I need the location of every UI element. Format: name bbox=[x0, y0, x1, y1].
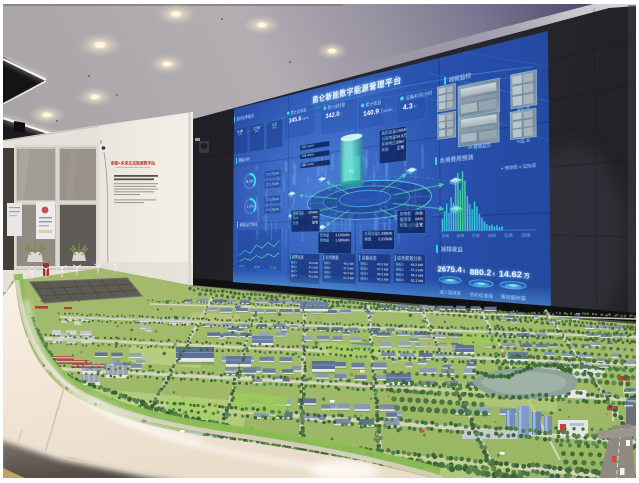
svg-text:6.1%: 6.1% bbox=[247, 178, 254, 184]
svg-text:23:00: 23:00 bbox=[522, 234, 532, 238]
svg-text:25: 25 bbox=[349, 168, 354, 175]
svg-text:08:00: 08:00 bbox=[254, 266, 261, 269]
svg-text:21:00: 21:00 bbox=[505, 235, 514, 239]
svg-text:新能+未来生态能源数字站: 新能+未来生态能源数字站 bbox=[111, 161, 155, 166]
svg-text:Power the Renewable And Digita: Power the Renewable And Digital Energy bbox=[116, 166, 151, 169]
svg-text:1.1%: 1.1% bbox=[247, 203, 254, 209]
svg-text:12:00: 12:00 bbox=[270, 267, 278, 270]
svg-text:17:00: 17:00 bbox=[472, 235, 481, 238]
svg-text:15:00: 15:00 bbox=[457, 235, 465, 238]
svg-text:13:00: 13:00 bbox=[442, 235, 450, 238]
svg-text:19:00: 19:00 bbox=[488, 235, 497, 239]
